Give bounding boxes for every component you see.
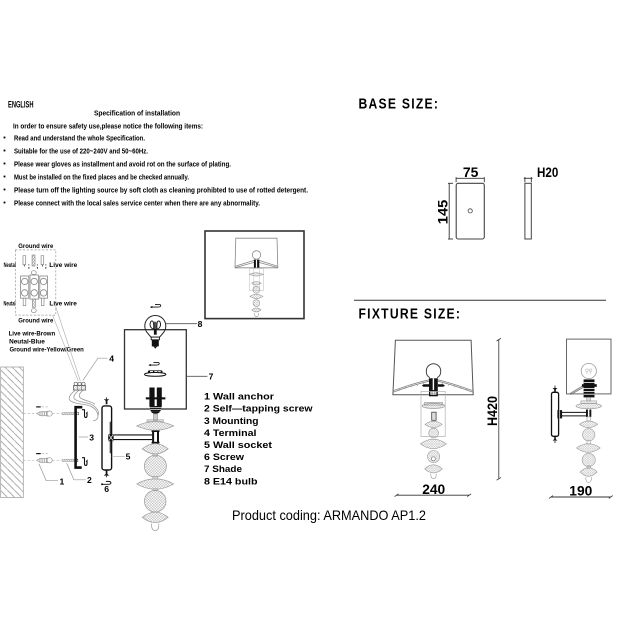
svg-text:;: ; — [28, 263, 30, 270]
svg-text:4: 4 — [109, 354, 114, 364]
svg-text:Neutal-Blue: Neutal-Blue — [9, 339, 45, 346]
svg-text:Ground wire: Ground wire — [18, 243, 53, 250]
svg-text:Ground wire: Ground wire — [18, 317, 53, 324]
svg-text:8: 8 — [198, 319, 203, 329]
svg-text:8 E14 bulb: 8 E14 bulb — [204, 476, 258, 486]
svg-text:FIXTURE SIZE:: FIXTURE SIZE: — [359, 305, 462, 321]
svg-text:In order to ensure safety use,: In order to ensure safety use,please not… — [13, 123, 203, 130]
svg-text:ENGLISH: ENGLISH — [8, 100, 34, 110]
svg-text:Please wear gloves as installm: Please wear gloves as installment and av… — [14, 161, 231, 168]
svg-text:2: 2 — [87, 475, 92, 485]
svg-text:Live wire: Live wire — [49, 262, 77, 269]
svg-text:Suitable for the use of 220~24: Suitable for the use of 220~240V and 50~… — [14, 148, 148, 155]
svg-text:6: 6 — [104, 484, 109, 494]
svg-text:4 Terminal: 4 Terminal — [204, 428, 257, 438]
svg-text:Live wire: Live wire — [49, 300, 77, 307]
svg-text:Please turn off the lighting s: Please turn off the lighting source by s… — [14, 187, 308, 194]
svg-text:3: 3 — [89, 432, 94, 442]
svg-text:5 Wall socket: 5 Wall socket — [204, 440, 272, 450]
svg-text:H420: H420 — [485, 396, 500, 426]
svg-text:BASE SIZE:: BASE SIZE: — [359, 95, 440, 111]
svg-text:6 Screw: 6 Screw — [204, 452, 245, 462]
svg-text:Product coding: ARMANDO AP1.2: Product coding: ARMANDO AP1.2 — [232, 507, 426, 523]
svg-text:Neutal: Neutal — [4, 300, 16, 307]
svg-text:7 Shade: 7 Shade — [204, 464, 242, 474]
svg-text:1 Wall anchor: 1 Wall anchor — [204, 392, 275, 402]
svg-text:Live wire-Brown: Live wire-Brown — [9, 331, 56, 338]
svg-text:1: 1 — [60, 476, 65, 486]
svg-text:Please connect with the local: Please connect with the local sales serv… — [14, 200, 260, 207]
svg-text:75: 75 — [463, 164, 479, 180]
svg-text:7: 7 — [209, 372, 214, 382]
svg-text:Read and understand the whole: Read and understand the whole Specificat… — [14, 135, 145, 142]
svg-text:Ground wire-Yellow/Green: Ground wire-Yellow/Green — [10, 347, 84, 354]
svg-text:Must be installed on the fixed: Must be installed on the fixed places an… — [14, 174, 189, 181]
svg-text:2 Self—tapping screw: 2 Self—tapping screw — [204, 404, 314, 414]
svg-text:190: 190 — [569, 484, 592, 499]
svg-text:145: 145 — [434, 199, 450, 224]
svg-text:Specification of installation: Specification of installation — [94, 111, 180, 118]
svg-text:5: 5 — [126, 452, 131, 462]
svg-text:H20: H20 — [537, 164, 558, 180]
svg-text:240: 240 — [422, 482, 445, 497]
svg-text:;: ; — [45, 263, 47, 270]
svg-text:;: ; — [36, 263, 38, 270]
svg-text:Neutal: Neutal — [4, 262, 16, 269]
svg-text:3 Mounting: 3 Mounting — [204, 416, 259, 426]
